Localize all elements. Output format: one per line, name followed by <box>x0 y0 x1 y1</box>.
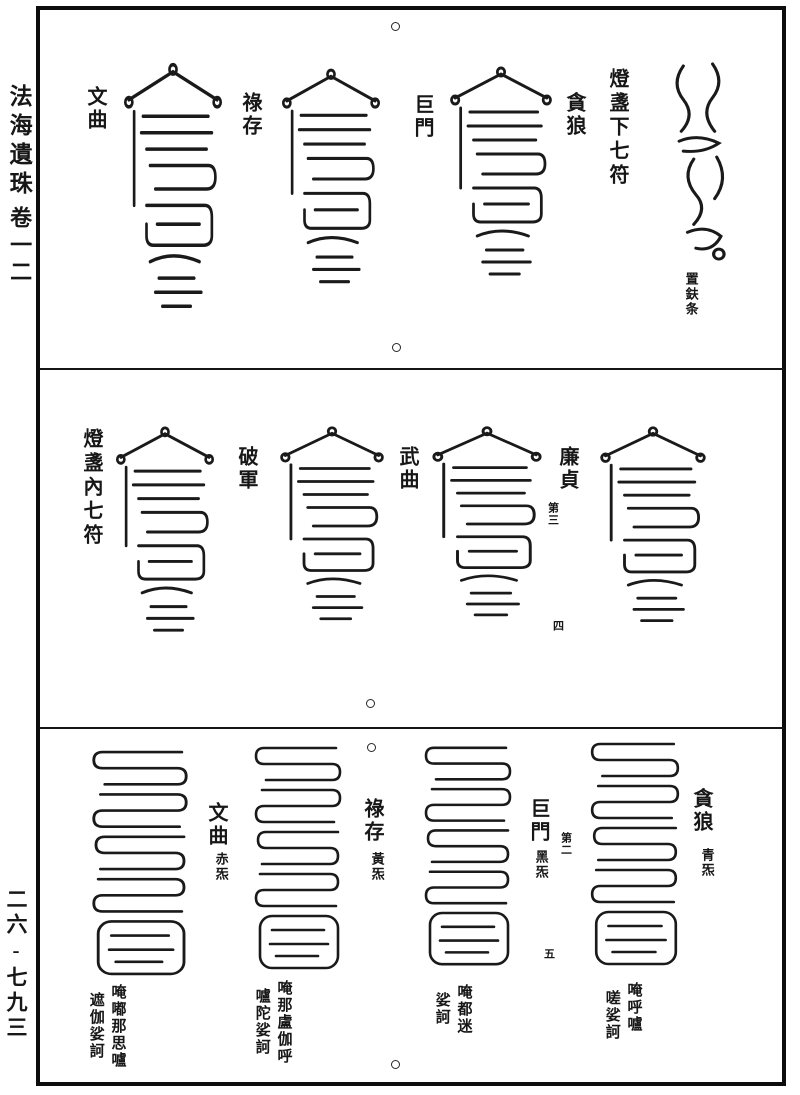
mantra-line: 唵都迷 <box>452 984 474 1035</box>
talisman-drawing-wenqu-top <box>120 60 226 318</box>
section-header-lamp-inside: 燈盞內七符 <box>80 428 101 548</box>
book-title: 法海遺珠 <box>6 84 30 200</box>
mantra-tanlang: 唵呼嚧 嗟娑訶 <box>600 982 644 1041</box>
binding-mark-circle <box>391 22 400 31</box>
color-note-blue-qi: 青炁 <box>700 848 714 878</box>
page-number: 二六-七九三 <box>5 888 27 1041</box>
order-marker-five: 五 <box>542 948 554 960</box>
talisman-drawing-mid-1 <box>112 424 218 640</box>
star-label-wenqu-bottom: 文曲 <box>205 802 226 848</box>
talisman-drawing-jumen-bottom <box>418 738 518 974</box>
mantra-jumen: 唵都迷 娑訶 <box>430 984 474 1035</box>
star-label-lucun-top: 祿存 <box>239 92 260 138</box>
talisman-drawing-pojun <box>276 424 388 628</box>
star-label-lianzhen: 廉貞 <box>556 446 577 492</box>
mantra-line: 唵嘟那思嚧 <box>106 984 128 1069</box>
talisman-drawing-wenqu-bottom <box>85 742 195 984</box>
color-note-red-qi: 赤炁 <box>214 852 228 882</box>
mantra-line: 娑訶 <box>430 984 452 1035</box>
star-label-jumen-bottom: 巨門 <box>527 798 548 844</box>
talisman-note: 置鈇条 <box>684 272 698 317</box>
color-note-black-qi: 黑炁 <box>534 850 548 880</box>
mantra-line: 唵那盧伽呼 <box>272 980 294 1065</box>
talisman-drawing-tanlang-bottom <box>584 734 686 974</box>
talisman-drawing-cursive <box>652 58 746 266</box>
volume-label: 卷一二 <box>8 206 31 287</box>
talisman-drawing-jumen-top <box>446 64 556 284</box>
section-divider-1 <box>40 368 784 370</box>
star-label-wenqu-top: 文曲 <box>84 86 105 132</box>
section-header-lamp-below: 燈盞下七符 <box>606 68 627 188</box>
order-marker-four: 四 <box>551 620 563 632</box>
star-label-tanlang-bottom: 貪狼 <box>690 788 711 834</box>
star-label-lucun-bottom: 祿存 <box>361 798 382 844</box>
binding-mark-circle <box>391 1060 400 1069</box>
mantra-line: 嗟娑訶 <box>600 982 622 1041</box>
order-note-second: 第二 <box>559 832 571 856</box>
talisman-drawing-wuqu <box>428 424 546 624</box>
color-note-yellow-qi: 黃炁 <box>370 852 384 882</box>
star-label-pojun: 破軍 <box>235 446 256 492</box>
binding-mark-circle <box>366 699 375 708</box>
star-label-jumen-top: 巨門 <box>411 94 432 140</box>
mantra-line: 唵呼嚧 <box>622 982 644 1041</box>
mantra-wenqu: 唵嘟那思嚧 遮伽娑訶 <box>84 984 128 1069</box>
mantra-line: 嚧陀娑訶 <box>250 980 272 1065</box>
talisman-drawing-lucun-bottom <box>248 738 348 978</box>
star-label-wuqu: 武曲 <box>396 446 417 492</box>
talisman-drawing-lianzhen <box>596 424 710 630</box>
mantra-line: 遮伽娑訶 <box>84 984 106 1069</box>
section-divider-2 <box>40 727 784 729</box>
binding-mark-circle <box>392 343 401 352</box>
order-note-third: 第三 <box>546 502 558 526</box>
scanned-book-page: { "colors": { "ink": "#171717", "paper":… <box>0 0 800 1095</box>
talisman-drawing-lucun-top <box>278 66 384 292</box>
star-label-tanlang-top: 貪狼 <box>563 92 584 138</box>
binding-mark-circle <box>367 743 376 752</box>
mantra-lucun: 唵那盧伽呼 嚧陀娑訶 <box>250 980 294 1065</box>
